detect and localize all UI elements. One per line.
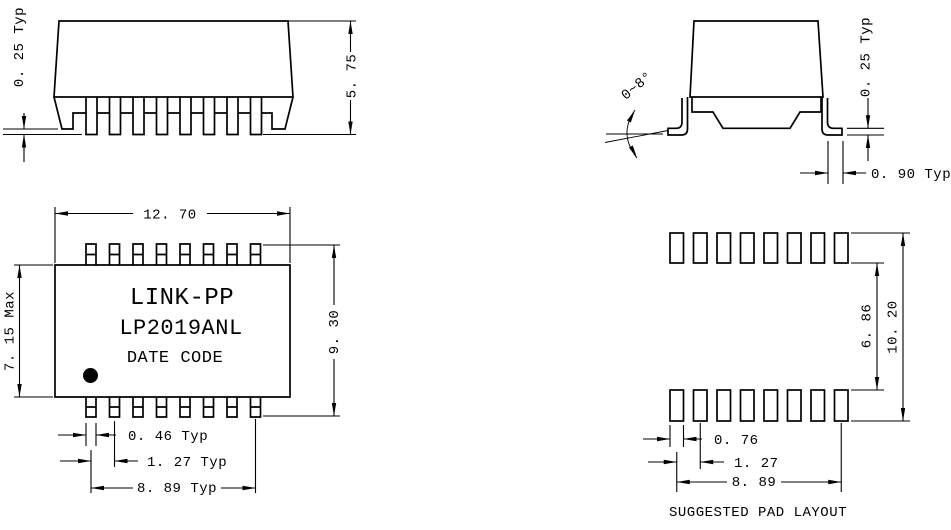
top-view: LINK-PP LP2019ANL DATE CODE 12. 7 [3,207,344,497]
lead-thickness-extension-lines [847,128,884,135]
part-number-marking: LP2019ANL [119,316,242,341]
end-view-body-outline [690,21,823,97]
outer-span-dimension-label: 10. 20 [886,300,902,353]
width-dimension-label: 12. 70 [143,208,196,224]
brand-marking: LINK-PP [130,285,234,312]
pin-width-dimension-label: 0. 46 Typ [128,429,208,445]
pad-row-span-dimension-label: 8. 89 [732,475,777,491]
side-view-left-skirt [54,97,86,129]
side-view-dimension-stems [24,21,351,162]
end-view-bottom-profile [692,97,821,128]
end-view-left-lead [668,97,688,135]
lead-foot-dimension-label: 0. 90 Typ [871,167,951,183]
pad-layout-lower-pads [670,390,848,421]
side-view: 0. 25 Typ 5. 75 [3,7,361,162]
pad-width-dimension-label: 0. 76 [714,433,759,449]
lead-thickness-dimension-label: 0. 25 Typ [859,17,875,97]
standoff-dimension-label: 0. 25 Typ [12,7,28,87]
end-view-right-lead [822,97,842,135]
depth-dimension-label: 7. 15 Max [3,291,19,371]
inner-gap-dimension-label: 6. 86 [860,304,876,349]
pad-layout-caption: SUGGESTED PAD LAYOUT [669,505,847,521]
side-view-body-outline [54,21,293,97]
lead-foot-extension-lines [828,141,843,184]
pad-layout-upper-pads [670,233,848,263]
pad-layout-view: 6. 86 10. 20 0. 76 1. 27 8. 89 SUGGESTED… [643,233,910,521]
drawing-canvas: 0. 25 Typ 5. 75 0~8° 0. 25 Typ 0. 90 Typ [0,0,951,530]
pad-layout-dimension-arrowheads [657,233,905,484]
row-span-dimension-label: 8. 89 Typ [137,481,217,497]
span-dimension-label: 9. 30 [327,310,343,355]
end-view: 0~8° 0. 25 Typ 0. 90 Typ [605,17,951,184]
height-dimension-label: 5. 75 [345,54,361,99]
lead-angle-reference-lines [605,131,668,143]
pin-pitch-dimension-label: 1. 27 Typ [147,455,227,471]
date-code-marking: DATE CODE [127,349,223,368]
technical-drawing-page: 0. 25 Typ 5. 75 0~8° 0. 25 Typ 0. 90 Typ [0,0,951,530]
pad-pitch-dimension-label: 1. 27 [734,456,779,472]
pin-width-extension-lines [86,421,115,467]
side-view-right-skirt [262,97,294,129]
lead-angle-dimension-label: 0~8° [619,69,657,104]
side-view-pins [86,97,262,135]
pin1-marker-dot [83,368,98,383]
